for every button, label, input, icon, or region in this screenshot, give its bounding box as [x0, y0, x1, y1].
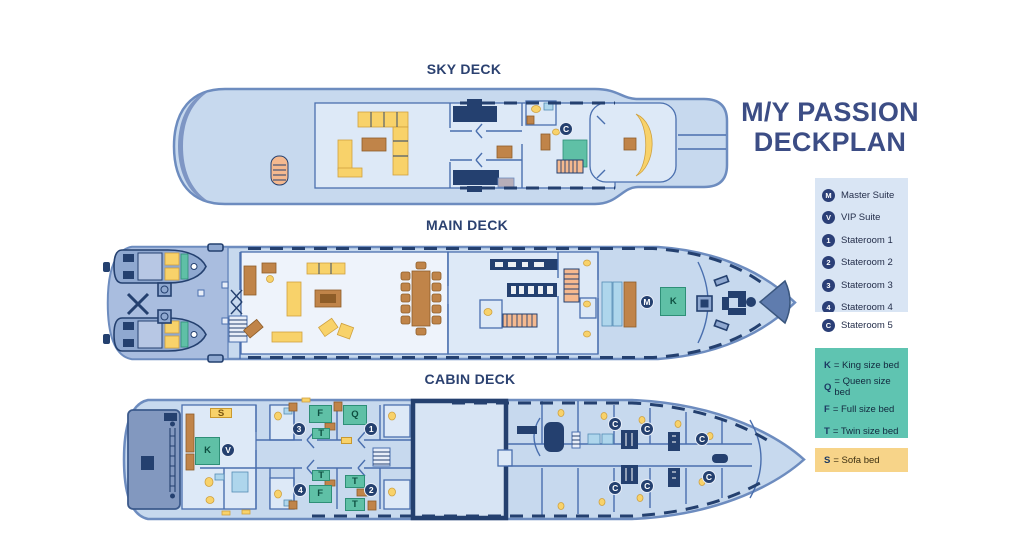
- legend-label: Master Suite: [841, 190, 894, 201]
- bed-legend: K = King size bed Q = Queen size bed F =…: [815, 348, 908, 438]
- legend-label: VIP Suite: [841, 212, 880, 223]
- legend-row-stateroom2: 2 Stateroom 2: [822, 252, 908, 275]
- bed-marker: F: [309, 405, 332, 423]
- legend-row-vip: V VIP Suite: [822, 207, 908, 230]
- legend-label: = Sofa bed: [833, 455, 879, 466]
- full-key: F: [824, 404, 830, 415]
- legend-label: = King size bed: [834, 360, 899, 371]
- plan-title-line1: M/Y PASSION: [741, 97, 919, 127]
- sofa-key: S: [824, 455, 830, 466]
- legend-row-full: F = Full size bed: [824, 398, 908, 420]
- bed-marker: Q: [343, 405, 367, 425]
- legend-row-queen: Q = Queen size bed: [824, 376, 908, 398]
- legend-label: Stateroom 1: [841, 235, 893, 246]
- stateroom1-badge: 1: [822, 234, 835, 247]
- bed-marker: T: [345, 498, 365, 511]
- bed-marker: T: [312, 428, 330, 439]
- deckplan-canvas: SKY DECK MAIN DECK CABIN DECK: [0, 0, 1019, 536]
- bed-marker: T: [312, 470, 330, 481]
- plan-title: M/Y PASSION DECKPLAN: [735, 97, 925, 157]
- room-badge: C: [608, 417, 622, 431]
- room-badge: C: [702, 470, 716, 484]
- main-deck-figure: MK: [98, 238, 800, 368]
- legend-label: Stateroom 3: [841, 280, 893, 291]
- legend-label: Stateroom 5: [841, 320, 893, 331]
- deck-label-cabin: CABIN DECK: [370, 371, 570, 387]
- stateroom2-badge: 2: [822, 256, 835, 269]
- legend-row-master: M Master Suite: [822, 184, 908, 207]
- sofa-marker: [341, 437, 353, 444]
- bed-marker: F: [309, 485, 332, 503]
- room-badge: C: [640, 479, 654, 493]
- room-badge: C: [695, 432, 709, 446]
- room-badge: C: [559, 122, 573, 136]
- sofa-marker: S: [210, 408, 232, 418]
- legend-label: = Queen size bed: [834, 376, 908, 398]
- legend-row-twin: T = Twin size bed: [824, 420, 908, 442]
- cabin-deck-figure: SKVFT3Q1TF4TT2CCCCCC: [112, 392, 807, 527]
- legend-label: = Twin size bed: [833, 426, 899, 437]
- legend-row-stateroom3: 3 Stateroom 3: [822, 274, 908, 297]
- stateroom3-badge: 3: [822, 279, 835, 292]
- legend-label: = Full size bed: [833, 404, 895, 415]
- legend-row-king: K = King size bed: [824, 354, 908, 376]
- bed-marker: T: [345, 475, 365, 488]
- twin-key: T: [824, 426, 830, 437]
- bed-marker: K: [660, 287, 686, 316]
- stateroom-legend: M Master Suite V VIP Suite 1 Stateroom 1…: [815, 178, 908, 323]
- queen-key: Q: [824, 382, 831, 393]
- stateroom5-legend: C Stateroom 5: [815, 312, 908, 339]
- room-badge: C: [640, 422, 654, 436]
- plan-title-line2: DECKPLAN: [754, 127, 906, 157]
- sky-deck-figure: C: [170, 86, 735, 208]
- room-badge: 3: [292, 422, 306, 436]
- king-key: K: [824, 360, 831, 371]
- room-badge: 4: [293, 483, 307, 497]
- deck-label-main: MAIN DECK: [367, 217, 567, 233]
- legend-row-stateroom1: 1 Stateroom 1: [822, 229, 908, 252]
- room-badge: C: [608, 481, 622, 495]
- bed-marker: K: [195, 437, 221, 465]
- room-badge: 2: [364, 483, 378, 497]
- room-badge: V: [221, 443, 235, 457]
- deck-label-sky: SKY DECK: [364, 61, 564, 77]
- vip-suite-badge: V: [822, 211, 835, 224]
- legend-row-stateroom5: C Stateroom 5: [822, 314, 908, 337]
- sofa-legend: S = Sofa bed: [815, 448, 908, 472]
- room-badge: 1: [364, 422, 378, 436]
- legend-label: Stateroom 2: [841, 257, 893, 268]
- stateroom5-badge: C: [822, 319, 835, 332]
- master-suite-badge: M: [822, 189, 835, 202]
- room-badge: M: [640, 295, 654, 309]
